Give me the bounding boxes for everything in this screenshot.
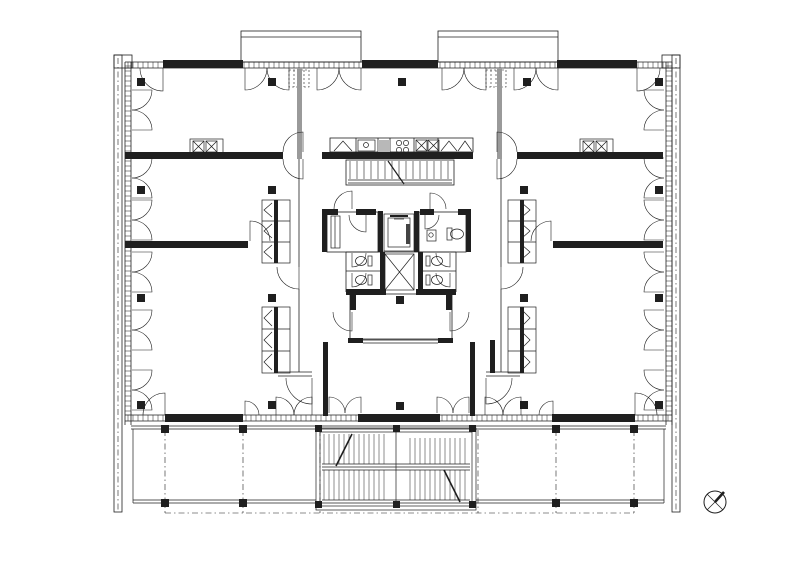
layer-north-arrow	[704, 491, 726, 513]
layer-walls-thick	[125, 60, 663, 422]
layer-walls-thin	[278, 68, 520, 376]
page	[0, 0, 800, 566]
floor-plan-svg	[0, 0, 800, 566]
layer-facade	[114, 31, 680, 512]
layer-fixtures	[190, 139, 613, 373]
